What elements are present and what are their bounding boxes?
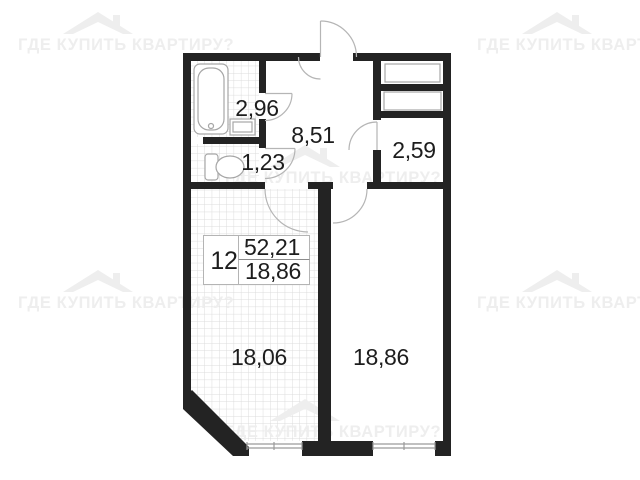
- bathroom-area-label: 2,96: [235, 95, 279, 121]
- house-icon-chimney: [320, 148, 327, 161]
- unit-number-label: 12: [210, 247, 237, 275]
- wall-bathroom-right-upper: [259, 61, 266, 93]
- wall-partition-jamb: [308, 182, 333, 189]
- watermark: ГДЕ КУПИТЬ КВАРТИРУ?: [477, 12, 640, 54]
- wall-left: [183, 53, 191, 403]
- watermark-text: ГДЕ КУПИТЬ КВАРТИРУ?: [225, 423, 441, 441]
- living-area-label: 18,86: [245, 258, 301, 284]
- wall-right: [443, 53, 451, 456]
- wall-closet-shelf-divider-2: [373, 111, 443, 118]
- house-icon: [63, 12, 133, 34]
- wall-bottom-middle: [302, 441, 373, 456]
- total-area-label: 52,21: [244, 234, 300, 260]
- hallway-area-label: 8,51: [291, 122, 335, 148]
- wc-area-label: 1,23: [241, 149, 285, 175]
- house-icon-chimney: [113, 273, 120, 286]
- watermark-text: ГДЕ КУПИТЬ КВАРТИРУ?: [18, 294, 234, 312]
- wall-top-left: [183, 53, 320, 61]
- wall-bottom-right-corner: [435, 441, 451, 456]
- room-right-area-label: 18,86: [353, 344, 409, 370]
- wall-bathroom-bottom: [203, 137, 265, 144]
- wall-wc-bottom: [183, 182, 265, 189]
- house-icon: [63, 270, 133, 292]
- closet-door: [349, 122, 377, 150]
- closet-shelf-top: [385, 64, 440, 82]
- floor-plan-page: ГДЕ КУПИТЬ КВАРТИРУ? ГДЕ КУПИТЬ КВАРТИРУ…: [0, 0, 640, 480]
- watermark: ГДЕ КУПИТЬ КВАРТИРУ?: [18, 12, 234, 54]
- window-left: [247, 442, 302, 450]
- watermark: ГДЕ КУПИТЬ КВАРТИРУ?: [477, 270, 640, 312]
- room-right-door-arc: [333, 189, 367, 223]
- house-icon-chimney: [113, 15, 120, 28]
- bathtub: [194, 64, 228, 134]
- room-left-area-label: 18,06: [231, 344, 287, 370]
- wall-partition: [318, 189, 331, 441]
- watermark-text: ГДЕ КУПИТЬ КВАРТИРУ?: [477, 294, 640, 312]
- watermark-text: ГДЕ КУПИТЬ КВАРТИРУ?: [477, 36, 640, 54]
- wall-top-right: [353, 53, 450, 61]
- sink: [230, 119, 255, 135]
- wall-hall-closet-lower: [373, 150, 381, 189]
- house-icon-chimney: [572, 15, 579, 28]
- watermark-text: ГДЕ КУПИТЬ КВАРТИРУ?: [18, 36, 234, 54]
- entrance-door: [299, 21, 357, 79]
- house-icon-chimney: [572, 273, 579, 286]
- closet-shelf-bottom: [384, 92, 441, 110]
- toilet: [205, 154, 244, 180]
- window-right: [373, 442, 435, 450]
- house-icon: [522, 12, 592, 34]
- house-icon: [522, 270, 592, 292]
- wall-closet-shelf-divider-1: [381, 84, 443, 91]
- closet-area-label: 2,59: [392, 137, 436, 163]
- floor-plan: ГДЕ КУПИТЬ КВАРТИРУ? ГДЕ КУПИТЬ КВАРТИРУ…: [0, 0, 640, 480]
